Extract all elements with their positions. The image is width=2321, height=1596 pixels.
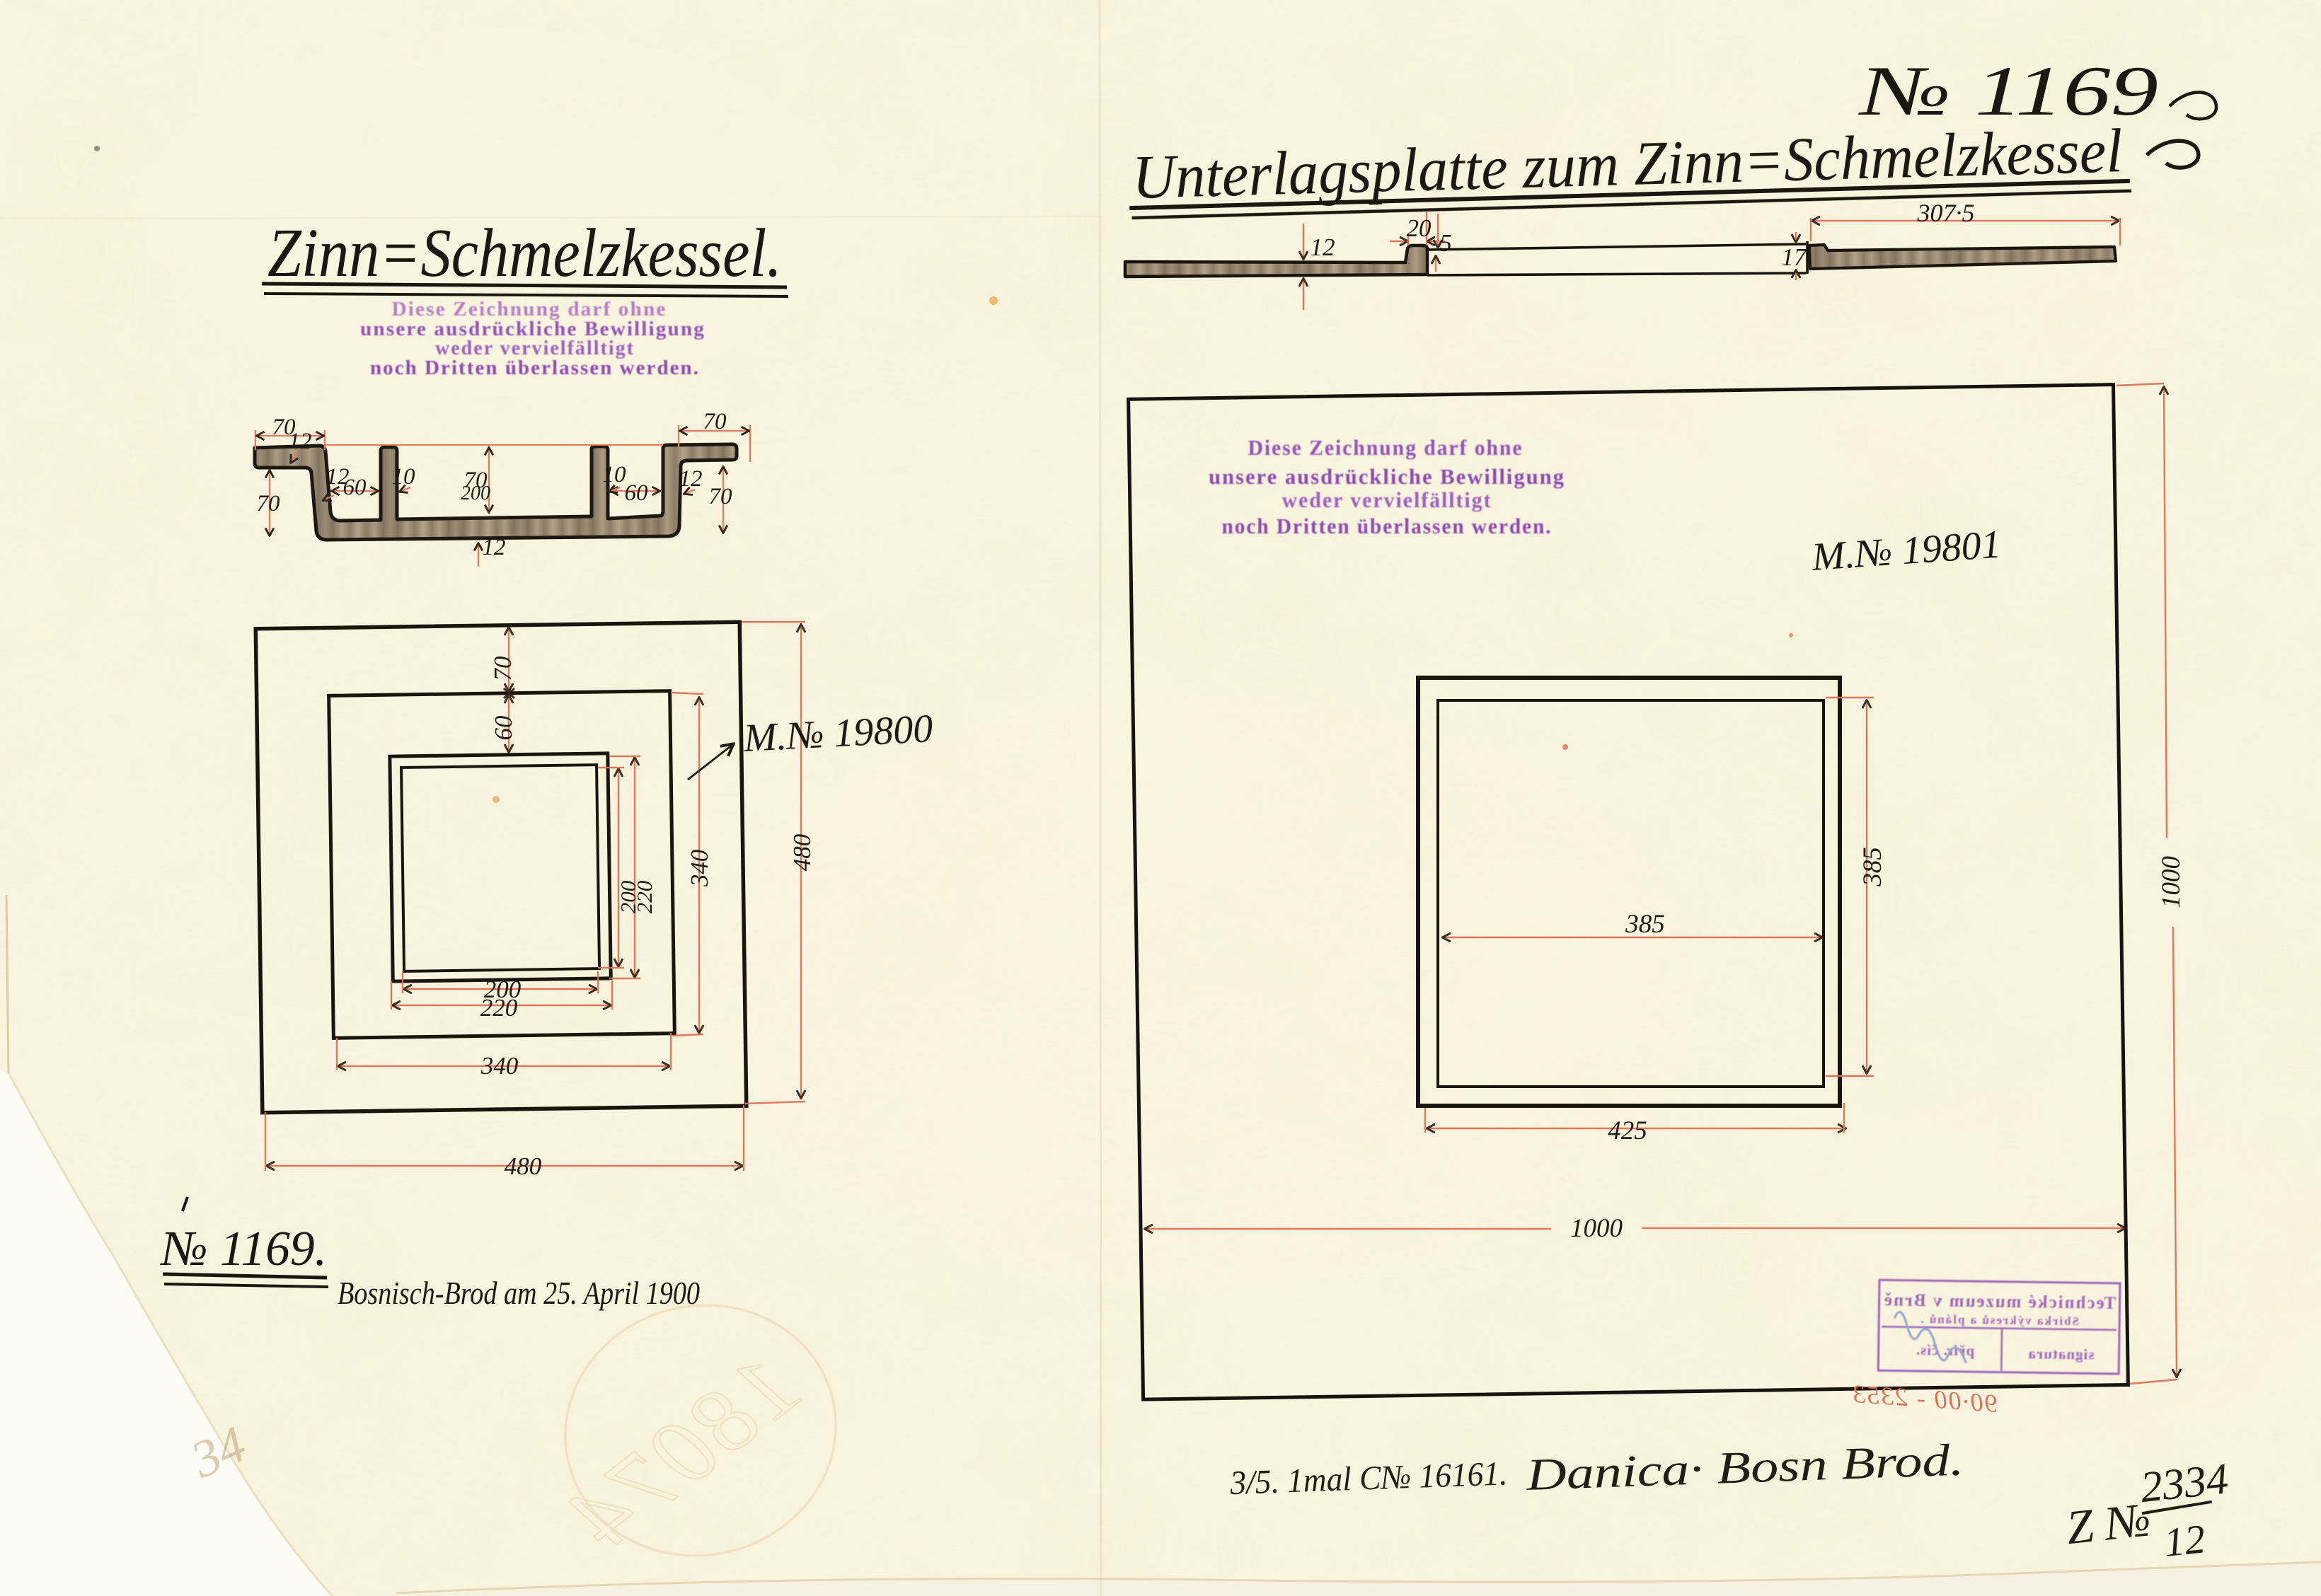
svg-text:Zinn=Schmelzkessel.: Zinn=Schmelzkessel. <box>267 215 782 291</box>
svg-text:noch Dritten überlassen werden: noch Dritten überlassen werden. <box>370 357 700 379</box>
svg-text:340: 340 <box>686 849 713 887</box>
svg-text:Diese Zeichnung darf ohne: Diese Zeichnung darf ohne <box>1248 435 1524 460</box>
svg-text:220: 220 <box>632 880 657 913</box>
svg-text:12: 12 <box>483 535 506 560</box>
svg-text:480: 480 <box>788 833 816 871</box>
svg-text:unsere ausdrückliche Bewilligu: unsere ausdrückliche Bewilligung <box>1209 464 1565 489</box>
svg-text:425: 425 <box>1608 1116 1647 1145</box>
svg-text:10: 10 <box>603 462 627 487</box>
svg-text:200: 200 <box>461 482 490 504</box>
svg-text:17: 17 <box>1782 243 1808 271</box>
svg-text:1000: 1000 <box>2157 856 2186 909</box>
svg-text:noch Dritten überlassen werden: noch Dritten überlassen werden. <box>1222 514 1553 538</box>
svg-text:Technické muzeum v Brně: Technické muzeum v Brně <box>1883 1290 2116 1313</box>
svg-text:20: 20 <box>1407 214 1432 242</box>
svg-text:70: 70 <box>257 491 281 516</box>
svg-text:weder vervielfälltigt: weder vervielfälltigt <box>1282 487 1492 512</box>
svg-text:340: 340 <box>480 1052 519 1080</box>
svg-text:signatura: signatura <box>2027 1345 2095 1363</box>
svg-text:5: 5 <box>1439 229 1452 257</box>
svg-text:385: 385 <box>1858 847 1887 887</box>
svg-text:10: 10 <box>392 464 416 490</box>
svg-text:60: 60 <box>343 475 367 500</box>
svg-text:12: 12 <box>679 466 703 492</box>
svg-text:2334: 2334 <box>2138 1455 2230 1512</box>
svg-text:70: 70 <box>489 656 517 681</box>
svg-text:přír. čís.: přír. čís. <box>1916 1341 1975 1359</box>
svg-text:385: 385 <box>1625 910 1665 939</box>
svg-text:Z №: Z № <box>2063 1492 2153 1554</box>
svg-text:220: 220 <box>480 994 518 1022</box>
svg-text:60: 60 <box>490 715 517 741</box>
svg-text:1000: 1000 <box>1570 1214 1623 1243</box>
svg-text:Diese Zeichnung darf ohne: Diese Zeichnung darf ohne <box>392 299 667 320</box>
svg-text:Sbírka výkresů a plánů .: Sbírka výkresů a plánů . <box>1919 1312 2079 1328</box>
svg-text:12: 12 <box>289 429 312 454</box>
svg-text:307·5: 307·5 <box>1917 199 1975 227</box>
svg-text:№ 1169.: № 1169. <box>159 1222 327 1276</box>
svg-text:60: 60 <box>625 480 649 506</box>
svg-text:12: 12 <box>1311 233 1335 261</box>
svg-text:weder vervielfälltigt: weder vervielfälltigt <box>435 337 635 359</box>
svg-text:Bosnisch-Brod am 25. April 190: Bosnisch-Brod am 25. April 1900 <box>338 1275 700 1311</box>
svg-text:70: 70 <box>703 409 727 434</box>
svg-text:70: 70 <box>709 484 733 509</box>
svg-text:480: 480 <box>505 1152 542 1180</box>
svg-text:12: 12 <box>2162 1515 2207 1566</box>
